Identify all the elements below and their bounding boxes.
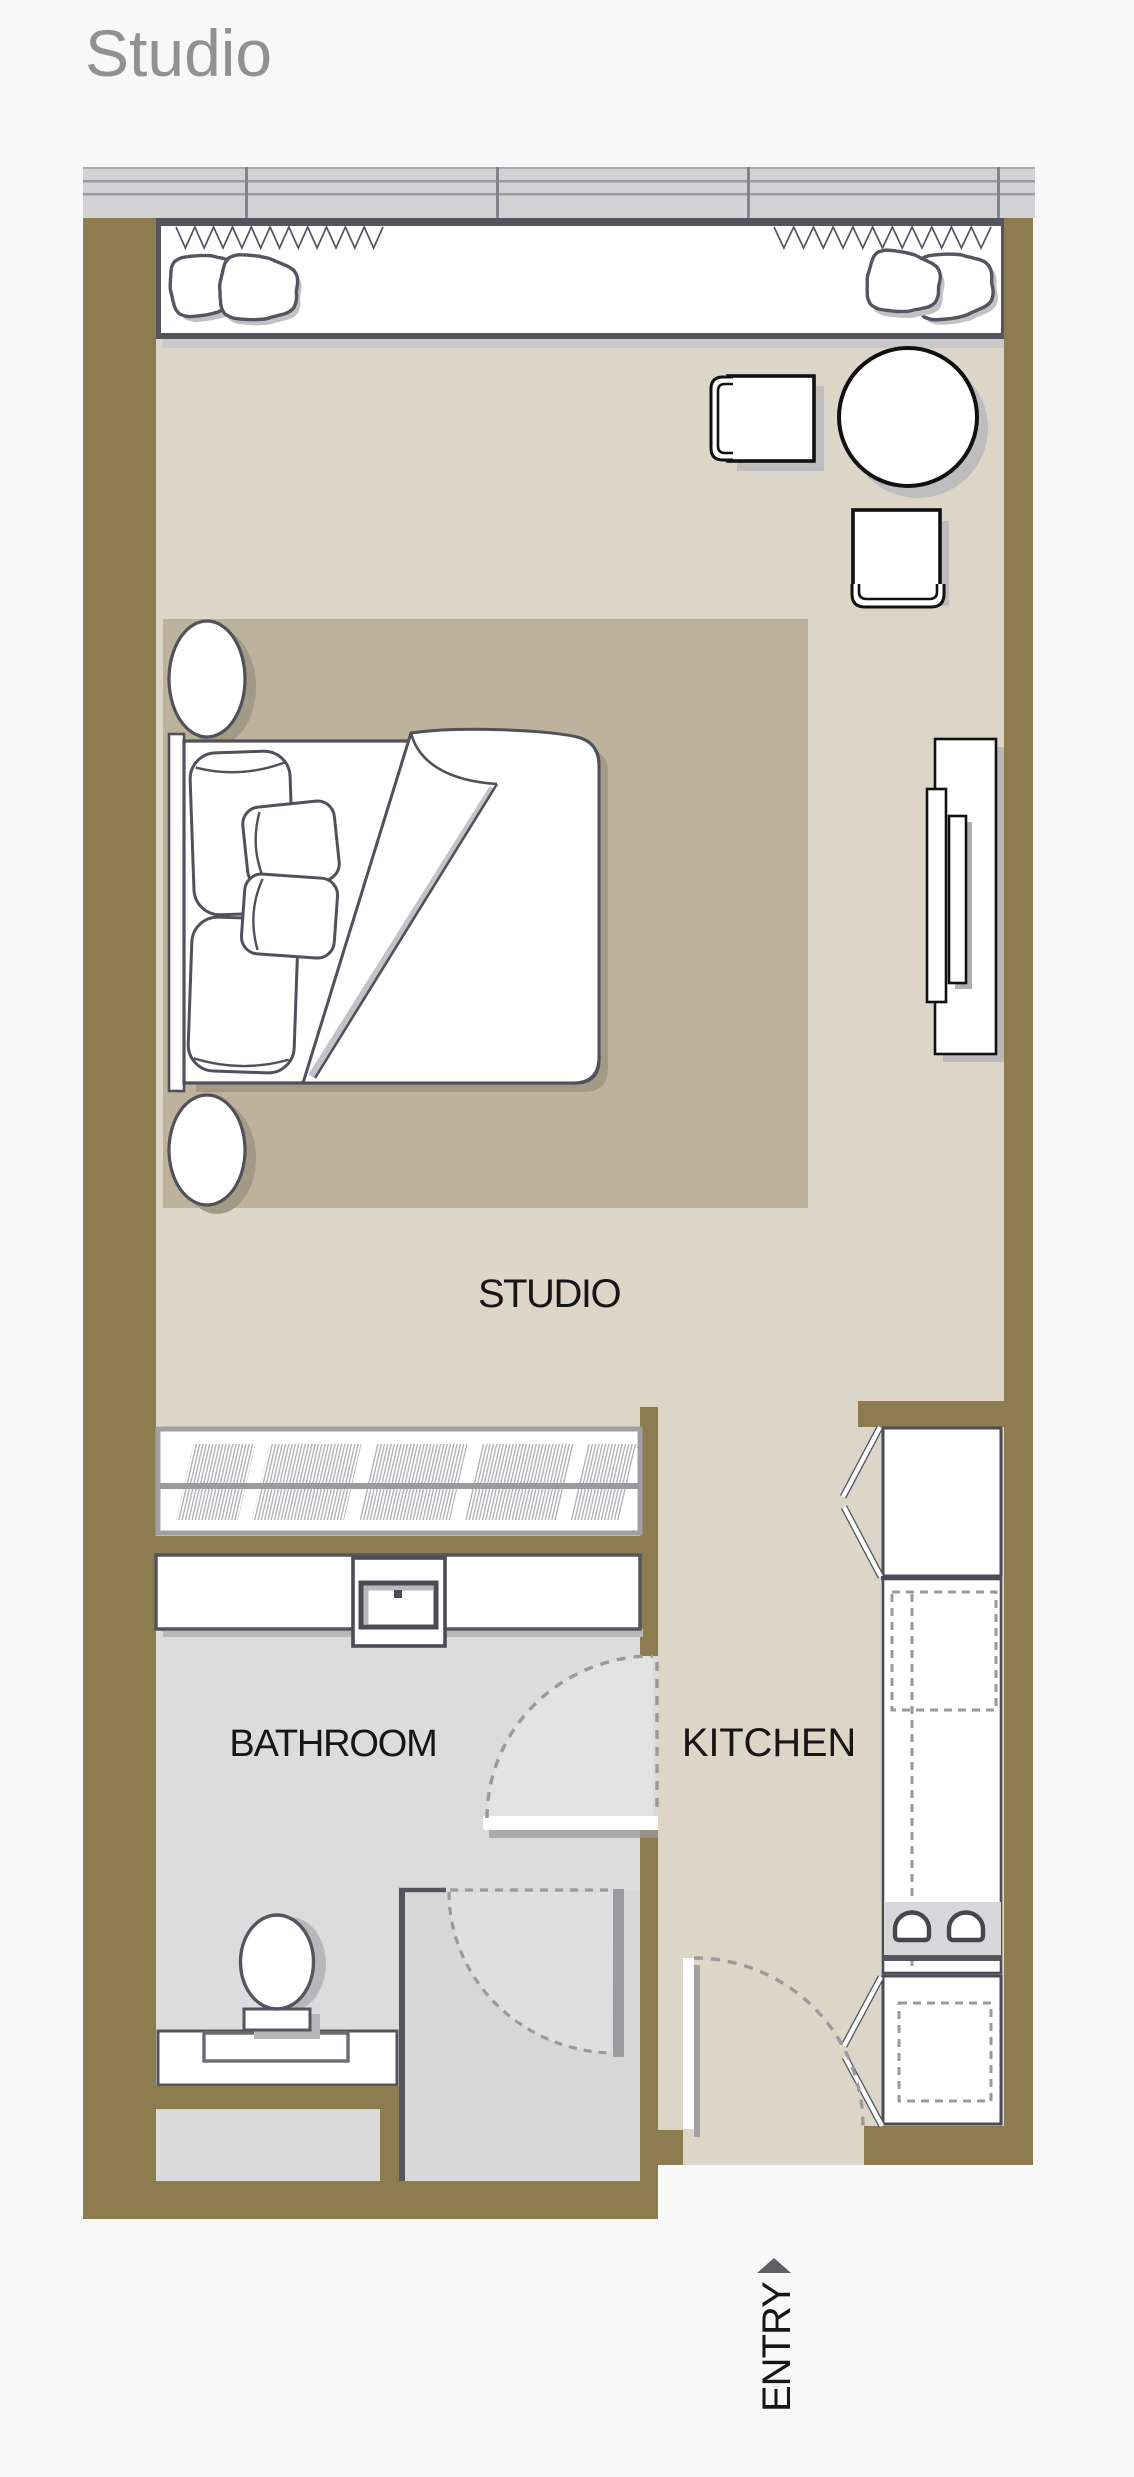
svg-text:STUDIO: STUDIO bbox=[478, 1272, 621, 1316]
svg-text:ENTRY: ENTRY bbox=[755, 2282, 799, 2412]
svg-text:BATHROOM: BATHROOM bbox=[229, 1723, 436, 1765]
svg-text:KITCHEN: KITCHEN bbox=[682, 1721, 856, 1765]
svg-text:Studio: Studio bbox=[85, 16, 272, 90]
